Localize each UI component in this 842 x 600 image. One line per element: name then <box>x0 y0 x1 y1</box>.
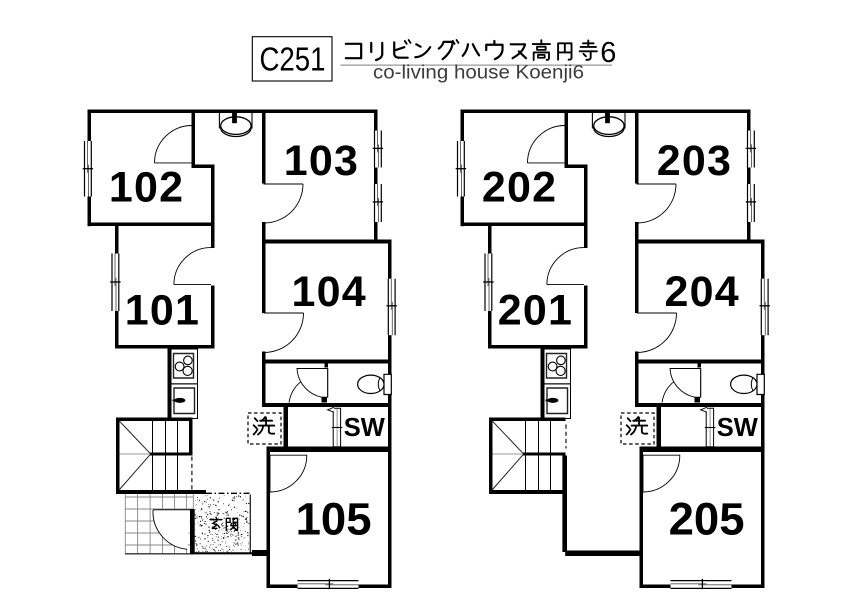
svg-text:C251: C251 <box>260 42 326 79</box>
svg-text:SW: SW <box>344 414 386 442</box>
svg-text:103: 103 <box>284 137 359 185</box>
svg-text:SW: SW <box>717 414 759 442</box>
svg-text:6: 6 <box>600 37 616 69</box>
svg-text:202: 202 <box>482 164 557 212</box>
svg-text:203: 203 <box>657 137 732 185</box>
svg-text:201: 201 <box>498 287 573 335</box>
svg-text:104: 104 <box>292 268 367 316</box>
svg-text:105: 105 <box>296 494 372 545</box>
svg-text:205: 205 <box>669 494 745 545</box>
svg-text:102: 102 <box>109 164 184 212</box>
svg-text:co-living house Koenji6: co-living house Koenji6 <box>373 62 584 83</box>
svg-text:101: 101 <box>125 287 200 335</box>
svg-text:204: 204 <box>665 268 740 316</box>
